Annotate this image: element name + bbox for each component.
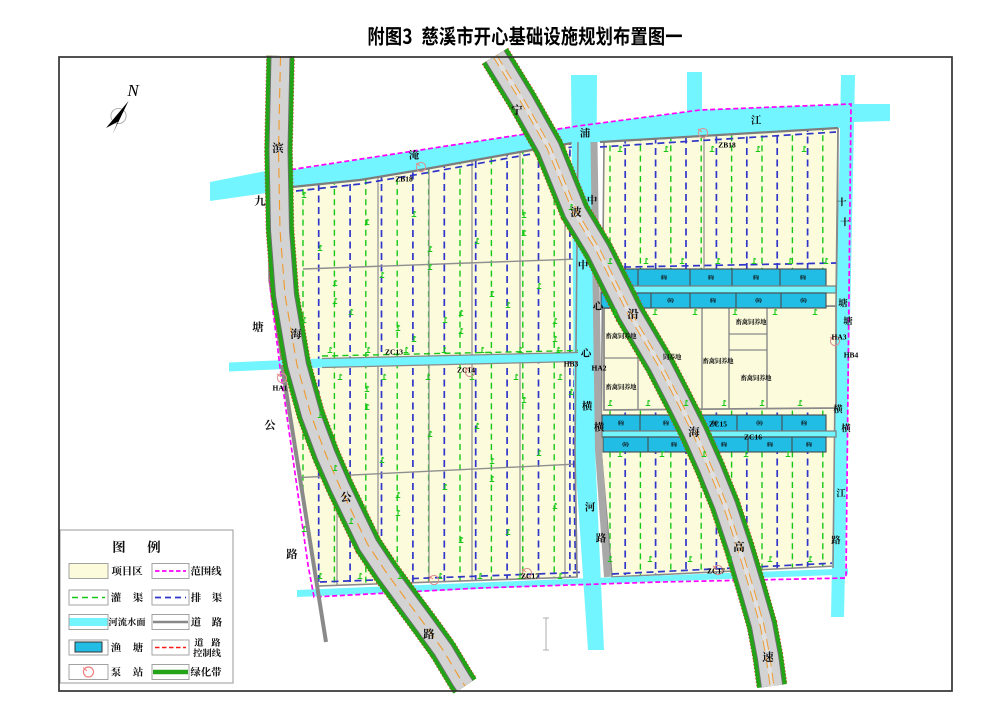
svg-text:HA1: HA1 xyxy=(273,384,288,393)
svg-text:ZC13: ZC13 xyxy=(385,348,403,357)
svg-text:HB4: HB4 xyxy=(844,351,859,360)
svg-text:ZC14: ZC14 xyxy=(457,366,475,375)
svg-text:ZC16: ZC16 xyxy=(744,433,762,442)
svg-text:HA3: HA3 xyxy=(832,333,847,342)
svg-text:HB3: HB3 xyxy=(564,360,579,369)
svg-text:ZC17: ZC17 xyxy=(707,567,725,576)
svg-text:ZC17: ZC17 xyxy=(521,572,539,581)
svg-text:N: N xyxy=(126,81,140,100)
svg-text:ZC15: ZC15 xyxy=(709,420,727,429)
svg-text:ZB18: ZB18 xyxy=(718,141,736,150)
svg-text:ZB18: ZB18 xyxy=(395,175,413,184)
svg-text:HA2: HA2 xyxy=(592,364,607,373)
